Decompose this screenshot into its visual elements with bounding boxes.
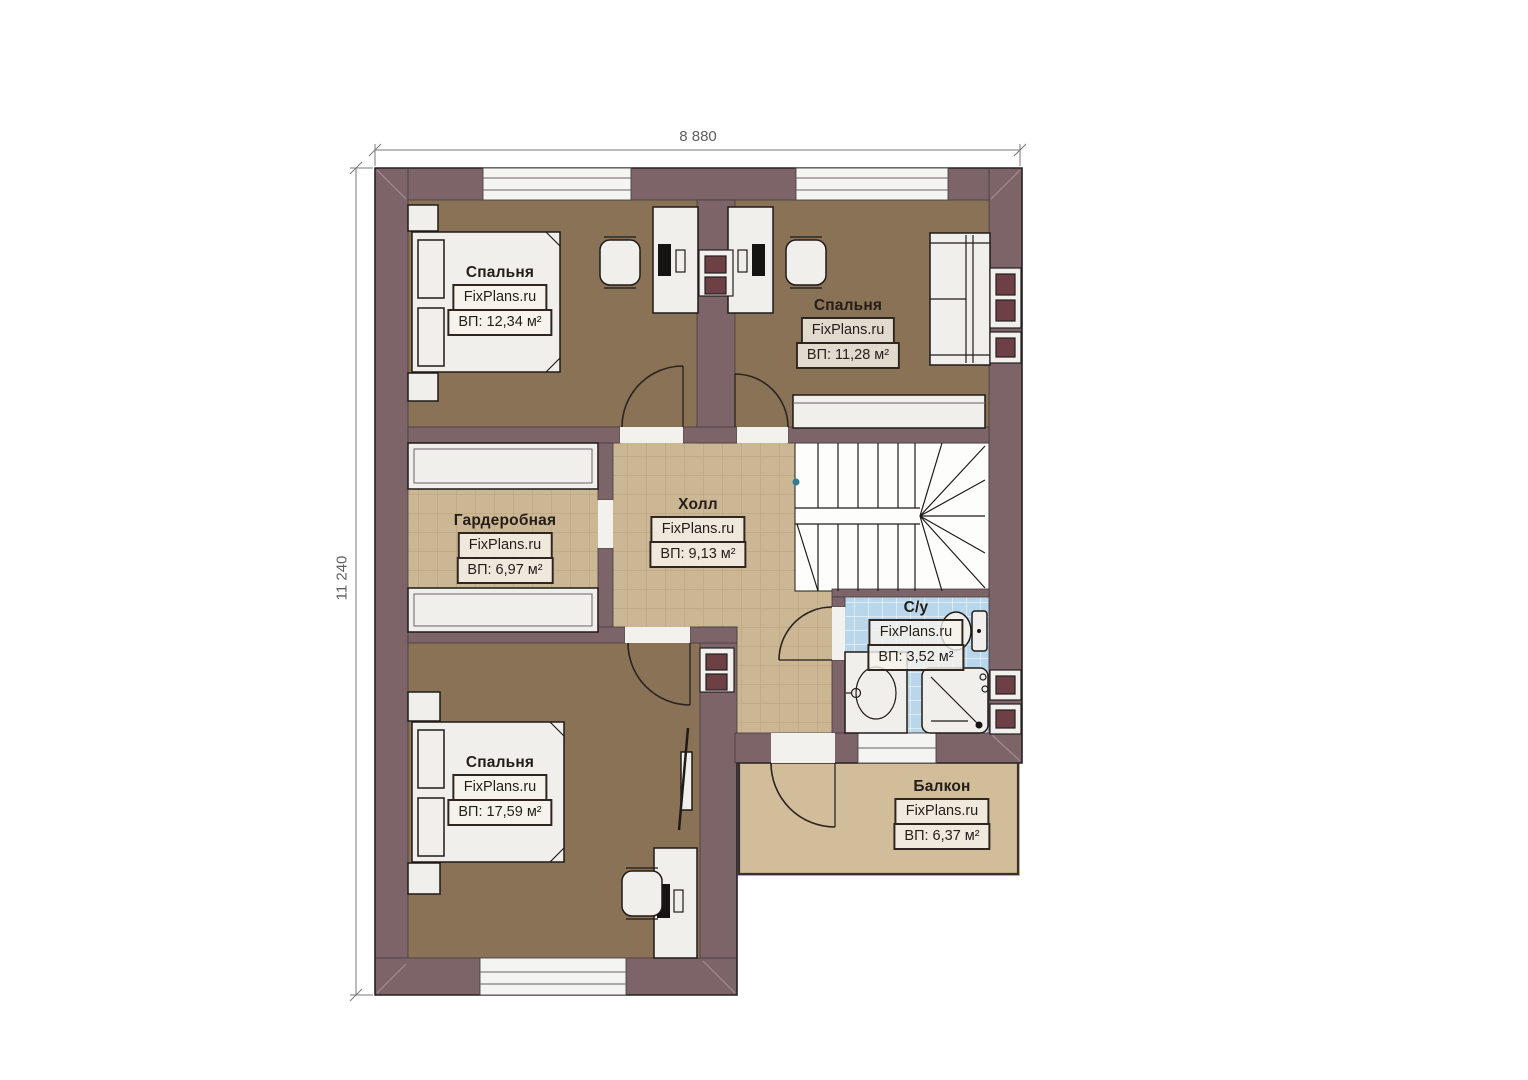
wall-bedroom-bottom-top-right xyxy=(690,627,737,643)
room-name: Гардеробная xyxy=(454,512,556,530)
room-label-bedroom-top-left: Спальня FixPlans.ru ВП: 12,34 м² xyxy=(447,264,552,336)
desk xyxy=(728,207,773,313)
area-box: ВП: 6,37 м² xyxy=(893,823,990,850)
desk xyxy=(653,207,698,313)
stair-marker-dot xyxy=(793,479,800,486)
room-name: Спальня xyxy=(466,754,534,772)
wall-hall-top-right xyxy=(788,427,989,443)
area-box: ВП: 12,34 м² xyxy=(447,309,552,336)
dimension-height-line xyxy=(350,162,373,1001)
watermark-box: FixPlans.ru xyxy=(895,798,990,825)
nightstand xyxy=(408,692,440,721)
door-opening-wardrobe xyxy=(598,500,613,548)
nightstand xyxy=(408,863,440,894)
dimension-width-line xyxy=(369,144,1026,166)
window-bottom xyxy=(480,958,626,995)
window-top-right xyxy=(796,168,948,200)
vent-shaft xyxy=(990,268,1021,363)
wall-hall-top-left xyxy=(408,427,620,443)
vent-shaft xyxy=(700,648,734,692)
room-label-hall: Холл FixPlans.ru ВП: 9,13 м² xyxy=(649,496,746,568)
shelf-unit xyxy=(408,443,598,489)
room-name: Балкон xyxy=(913,778,970,796)
room-name: С/у xyxy=(904,599,929,617)
window-bathroom xyxy=(858,733,936,763)
wall-left xyxy=(375,168,408,995)
area-box: ВП: 3,52 м² xyxy=(867,644,964,671)
room-label-wardrobe: Гардеробная FixPlans.ru ВП: 6,97 м² xyxy=(454,512,556,584)
door-opening-bedroom-bottom xyxy=(625,627,690,643)
area-box: ВП: 17,59 м² xyxy=(447,799,552,826)
door-opening-bathroom xyxy=(832,607,845,660)
wardrobe-cabinet xyxy=(930,233,990,365)
wall-hall-top-center xyxy=(683,427,737,443)
wall-bathroom-top xyxy=(832,589,989,597)
wall-bathroom-left-lower xyxy=(832,660,845,733)
nightstand xyxy=(408,205,438,231)
nightstand xyxy=(408,373,438,401)
shower xyxy=(922,668,988,733)
wall-wardrobe-upper xyxy=(598,443,613,500)
wall-bathroom-left-upper xyxy=(832,597,845,607)
closet xyxy=(793,395,985,428)
office-chair xyxy=(786,237,826,288)
dimension-width-label: 8 880 xyxy=(679,128,717,145)
floor-plan-drawing xyxy=(0,0,1528,1080)
area-box: ВП: 9,13 м² xyxy=(649,541,746,568)
dimension-height-label: 11 240 xyxy=(334,556,351,601)
watermark-box: FixPlans.ru xyxy=(453,774,548,801)
room-label-bedroom-bottom: Спальня FixPlans.ru ВП: 17,59 м² xyxy=(447,754,552,826)
floor-plan-canvas: 8 880 11 240 Спальня FixPlans.ru ВП: 12,… xyxy=(0,0,1528,1080)
room-name: Спальня xyxy=(814,297,882,315)
shelf-unit xyxy=(408,588,598,632)
watermark-box: FixPlans.ru xyxy=(651,516,746,543)
wall-wardrobe-lower xyxy=(598,548,613,632)
area-box: ВП: 11,28 м² xyxy=(796,342,900,369)
door-opening-bedroom-top-left xyxy=(620,427,683,443)
watermark-box: FixPlans.ru xyxy=(453,284,548,311)
room-name: Холл xyxy=(678,496,718,514)
monitor xyxy=(658,244,671,276)
room-name: Спальня xyxy=(466,264,534,282)
watermark-box: FixPlans.ru xyxy=(801,317,896,344)
monitor xyxy=(752,244,765,276)
staircase-floor xyxy=(795,443,989,591)
watermark-box: FixPlans.ru xyxy=(869,619,964,646)
office-chair xyxy=(622,868,662,919)
window-top-left xyxy=(483,168,631,200)
door-opening-bedroom-top-right xyxy=(737,427,788,443)
watermark-box: FixPlans.ru xyxy=(458,532,553,559)
area-box: ВП: 6,97 м² xyxy=(456,557,553,584)
room-label-balcony: Балкон FixPlans.ru ВП: 6,37 м² xyxy=(893,778,990,850)
door-opening-balcony xyxy=(771,733,835,763)
vent-shaft xyxy=(699,250,733,296)
room-label-bedroom-top-right: Спальня FixPlans.ru ВП: 11,28 м² xyxy=(796,297,900,369)
office-chair xyxy=(600,237,640,288)
room-label-bathroom: С/у FixPlans.ru ВП: 3,52 м² xyxy=(867,599,964,671)
